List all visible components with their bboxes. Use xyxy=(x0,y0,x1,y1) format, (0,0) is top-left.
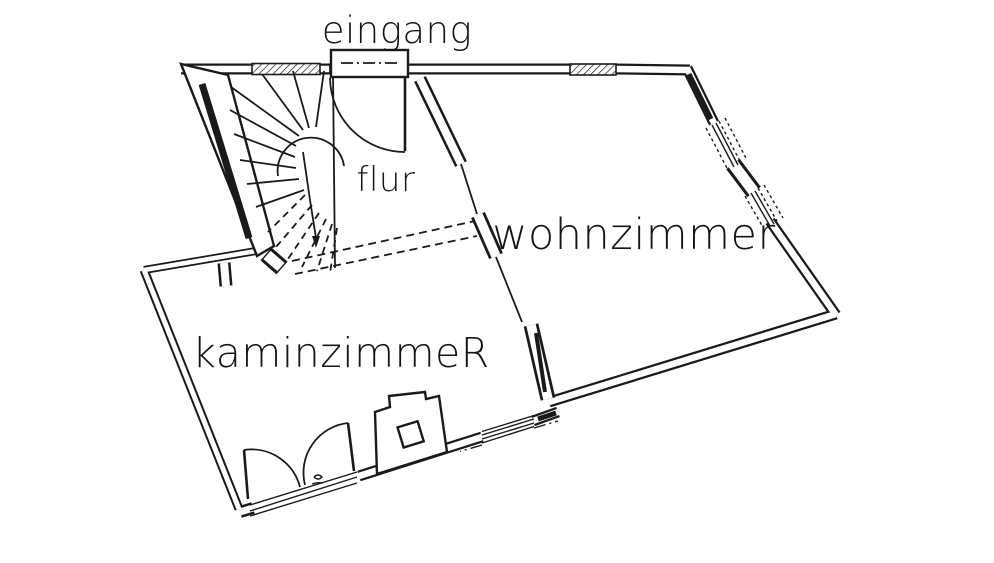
kaminzimmer-doors xyxy=(244,423,357,516)
entrance xyxy=(330,50,408,152)
window-top-right xyxy=(570,64,616,75)
stair-west-wall xyxy=(181,64,282,268)
door-leaf-left xyxy=(244,450,248,499)
open-edge-line xyxy=(496,257,522,322)
threshold-mark xyxy=(312,475,323,484)
stair-opening-dashed-lines xyxy=(292,221,477,274)
label-eingang: eingang xyxy=(322,9,473,52)
chimney-flue xyxy=(398,421,424,447)
floor-plan-drawing: eingang flur wohnzimmer kaminzimmeR xyxy=(0,0,994,563)
wall-core xyxy=(689,74,711,119)
entrance-door-arc xyxy=(330,78,405,152)
label-kaminzimmer: kaminzimmeR xyxy=(192,329,489,377)
door-arc-left xyxy=(244,449,300,487)
label-flur: flur xyxy=(357,160,416,200)
label-wohnzimmer: wohnzimmer xyxy=(492,210,775,260)
door-arc-right xyxy=(303,423,348,485)
floor-plan-page: eingang flur wohnzimmer kaminzimmeR xyxy=(0,0,994,563)
chimney xyxy=(375,392,447,474)
door-leaf-right xyxy=(348,423,354,471)
open-edge-line xyxy=(461,164,477,214)
window-top-left xyxy=(252,64,320,75)
